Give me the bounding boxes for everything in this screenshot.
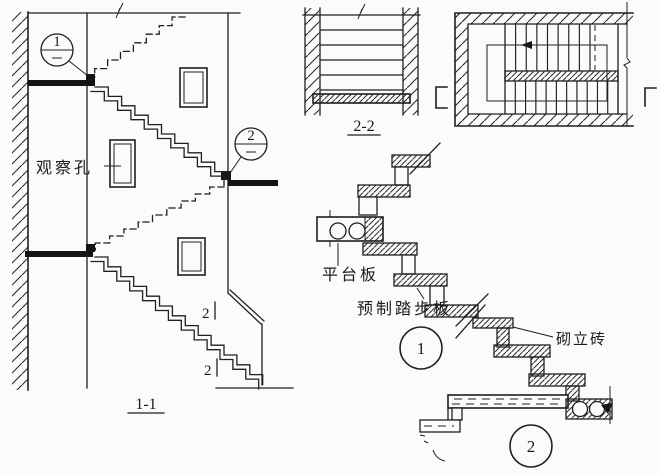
svg-text:2: 2 <box>202 306 210 322</box>
section-2-2-drawing: 2-2 <box>303 4 420 135</box>
detail-1-drawing: 平台板 预制踏步板 1 <box>317 143 488 369</box>
svg-text:1: 1 <box>417 339 426 358</box>
cut-position-mark-left <box>436 87 447 108</box>
upright-brick-label: 砌立砖 <box>556 330 607 348</box>
callout-number: 1 <box>53 34 61 50</box>
riser <box>402 255 415 274</box>
callout-number: 2 <box>247 128 255 144</box>
tread-slab <box>363 243 417 255</box>
break-mark <box>358 4 365 19</box>
stair-plan-drawing <box>436 2 656 126</box>
leader-line <box>417 288 424 299</box>
wall-hatch <box>455 13 633 24</box>
detail-callout-2: 2 <box>228 128 267 176</box>
platform-slab-label: 平台板 <box>322 265 379 284</box>
tread-slab <box>392 155 430 167</box>
wall-hatch <box>455 13 468 126</box>
flight-cut-band <box>505 71 618 81</box>
hidden-flight-upper <box>95 17 185 77</box>
precast-tread-label: 预制踏步板 <box>357 299 452 318</box>
construction-drawing-sheet: 观察孔 1 2 2 2 1-1 <box>0 0 660 475</box>
section-1-1-drawing: 观察孔 1 2 2 2 1-1 <box>12 3 293 413</box>
tread-slab <box>529 374 585 386</box>
stair-landing-joint <box>86 244 95 252</box>
landing-slab <box>228 180 278 186</box>
svg-text:2: 2 <box>527 437 536 456</box>
riser <box>395 167 408 185</box>
drawing-canvas: 观察孔 1 2 2 2 1-1 <box>0 0 660 475</box>
landing-slab <box>28 80 95 86</box>
tread-slab <box>494 345 550 357</box>
detail-2-number-bubble: 2 <box>510 425 552 467</box>
cut-position-mark-right <box>645 88 656 106</box>
leader-line <box>513 327 553 337</box>
section-cut-mark-2-lower: 2 <box>204 359 217 379</box>
upright-brick <box>531 357 544 376</box>
wall-hatch <box>12 12 28 390</box>
tread-slab <box>358 185 410 197</box>
tread-slab <box>394 274 447 286</box>
riser <box>359 197 377 215</box>
tread-slab <box>473 318 513 328</box>
landing-slab <box>25 251 93 257</box>
section-cut-mark-2-upper: 2 <box>202 302 215 322</box>
section-2-2-title: 2-2 <box>353 118 374 135</box>
wall-hatch <box>455 114 633 126</box>
break-mark <box>116 3 123 18</box>
observation-hole-label: 观察孔 <box>36 158 93 177</box>
upper-flight-treads <box>516 24 590 71</box>
detail-callout-1: 1 <box>41 34 88 76</box>
upright-brick <box>497 328 509 347</box>
platform-slab-cut <box>313 94 410 103</box>
outer-wall-line <box>455 13 633 126</box>
svg-text:2: 2 <box>204 363 212 379</box>
tread-lines <box>320 30 403 90</box>
section-1-1-title: 1-1 <box>135 396 156 413</box>
observation-hole <box>110 68 207 275</box>
leader-arc <box>433 450 445 461</box>
detail-1-number-bubble: 1 <box>400 327 442 369</box>
lower-flight-treads <box>515 81 618 114</box>
detail-2-drawing: 砌立砖 2 <box>420 305 613 467</box>
flight-4 <box>91 257 263 389</box>
